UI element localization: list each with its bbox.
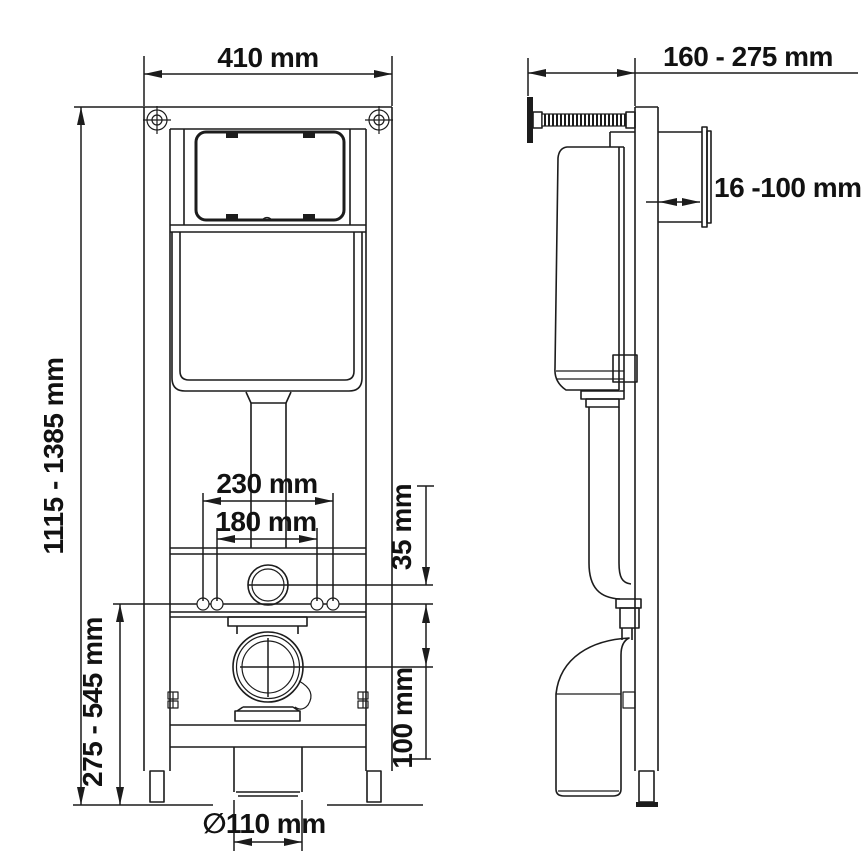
access-panel — [196, 132, 344, 220]
dim-outlet-diameter: ∅110 mm — [202, 800, 325, 851]
foot-right — [367, 771, 381, 802]
dim-plate-depth: 16 -100 mm — [646, 172, 862, 206]
side-view: 160 - 275 mm 16 -100 mm — [527, 41, 862, 807]
elbow-collar — [616, 599, 641, 608]
flush-plate-opening — [184, 129, 350, 225]
cistern-side-profile — [555, 132, 637, 391]
cistern-outer — [172, 232, 362, 391]
flush-plate-box — [658, 127, 711, 227]
dim-label-outlet-offset: 100 mm — [387, 667, 418, 768]
flush-plate-inner — [707, 131, 711, 223]
technical-drawing-canvas: 410 mm 1115 - 1385 mm 275 - 545 mm 230 m… — [0, 0, 866, 867]
rod-nut-left — [533, 112, 542, 128]
drain-pipe-end — [236, 792, 300, 796]
panel-clip — [226, 214, 238, 219]
flush-pipe-neck — [246, 392, 291, 403]
dim-label-flush-offset: 35 mm — [386, 484, 417, 570]
panel-clip — [303, 214, 315, 219]
wall-flange — [527, 97, 533, 143]
dim-frame-width: 410 mm — [144, 42, 392, 106]
threaded-rod — [542, 114, 626, 126]
front-view: 410 mm 1115 - 1385 mm 275 - 545 mm 230 m… — [38, 42, 434, 851]
dim-label-plate-depth: 16 -100 mm — [714, 172, 862, 203]
mid-bracket — [613, 355, 637, 382]
installation-frame-drawing: 410 mm 1115 - 1385 mm 275 - 545 mm 230 m… — [0, 0, 866, 867]
flush-pipe-side — [581, 391, 641, 640]
cistern-inner — [180, 232, 354, 380]
cistern — [170, 225, 366, 391]
waste-bend-side — [556, 638, 635, 796]
dim-depth-range: 160 - 275 mm — [528, 41, 858, 106]
wall-anchor-rod — [527, 97, 635, 143]
opening-side-walls — [184, 129, 350, 225]
foot-left — [150, 771, 164, 802]
dim-flush-offset: 35 mm — [386, 484, 434, 585]
dim-label-outlet-diameter: ∅110 mm — [202, 808, 325, 839]
elbow-connector — [620, 608, 639, 628]
dim-label-frame-width: 410 mm — [217, 42, 318, 73]
bolt-hole-right-icon — [365, 106, 393, 134]
dim-label-lower-height: 275 - 545 mm — [77, 617, 108, 787]
waste-crosshair — [240, 638, 296, 697]
feet — [150, 771, 381, 802]
outlet-socket-collar — [235, 711, 300, 721]
cistern-top-rim — [170, 225, 366, 232]
dim-label-frame-height: 1115 - 1385 mm — [38, 358, 69, 555]
pipe-collar-lower — [586, 399, 619, 407]
rod-nut-right — [626, 112, 635, 128]
dim-label-fixing-inner: 180 mm — [215, 506, 316, 537]
dim-label-depth-range: 160 - 275 mm — [663, 41, 833, 72]
pipe-clamp-plate — [228, 617, 307, 626]
side-foot-base — [636, 802, 658, 807]
panel-clip — [226, 133, 238, 138]
dim-lower-height: 275 - 545 mm — [77, 604, 124, 805]
dim-outlet-offset: 100 mm — [387, 604, 431, 769]
side-clamp — [623, 692, 635, 708]
bolt-hole-left-icon — [143, 106, 171, 134]
side-foot — [639, 771, 654, 802]
panel-clip — [303, 133, 315, 138]
dim-label-fixing-outer: 230 mm — [216, 468, 317, 499]
drain-pipe-walls — [234, 747, 302, 792]
pipe-collar-upper — [581, 391, 624, 399]
frame-upright — [635, 107, 658, 807]
bottom-crossbar — [170, 725, 366, 796]
